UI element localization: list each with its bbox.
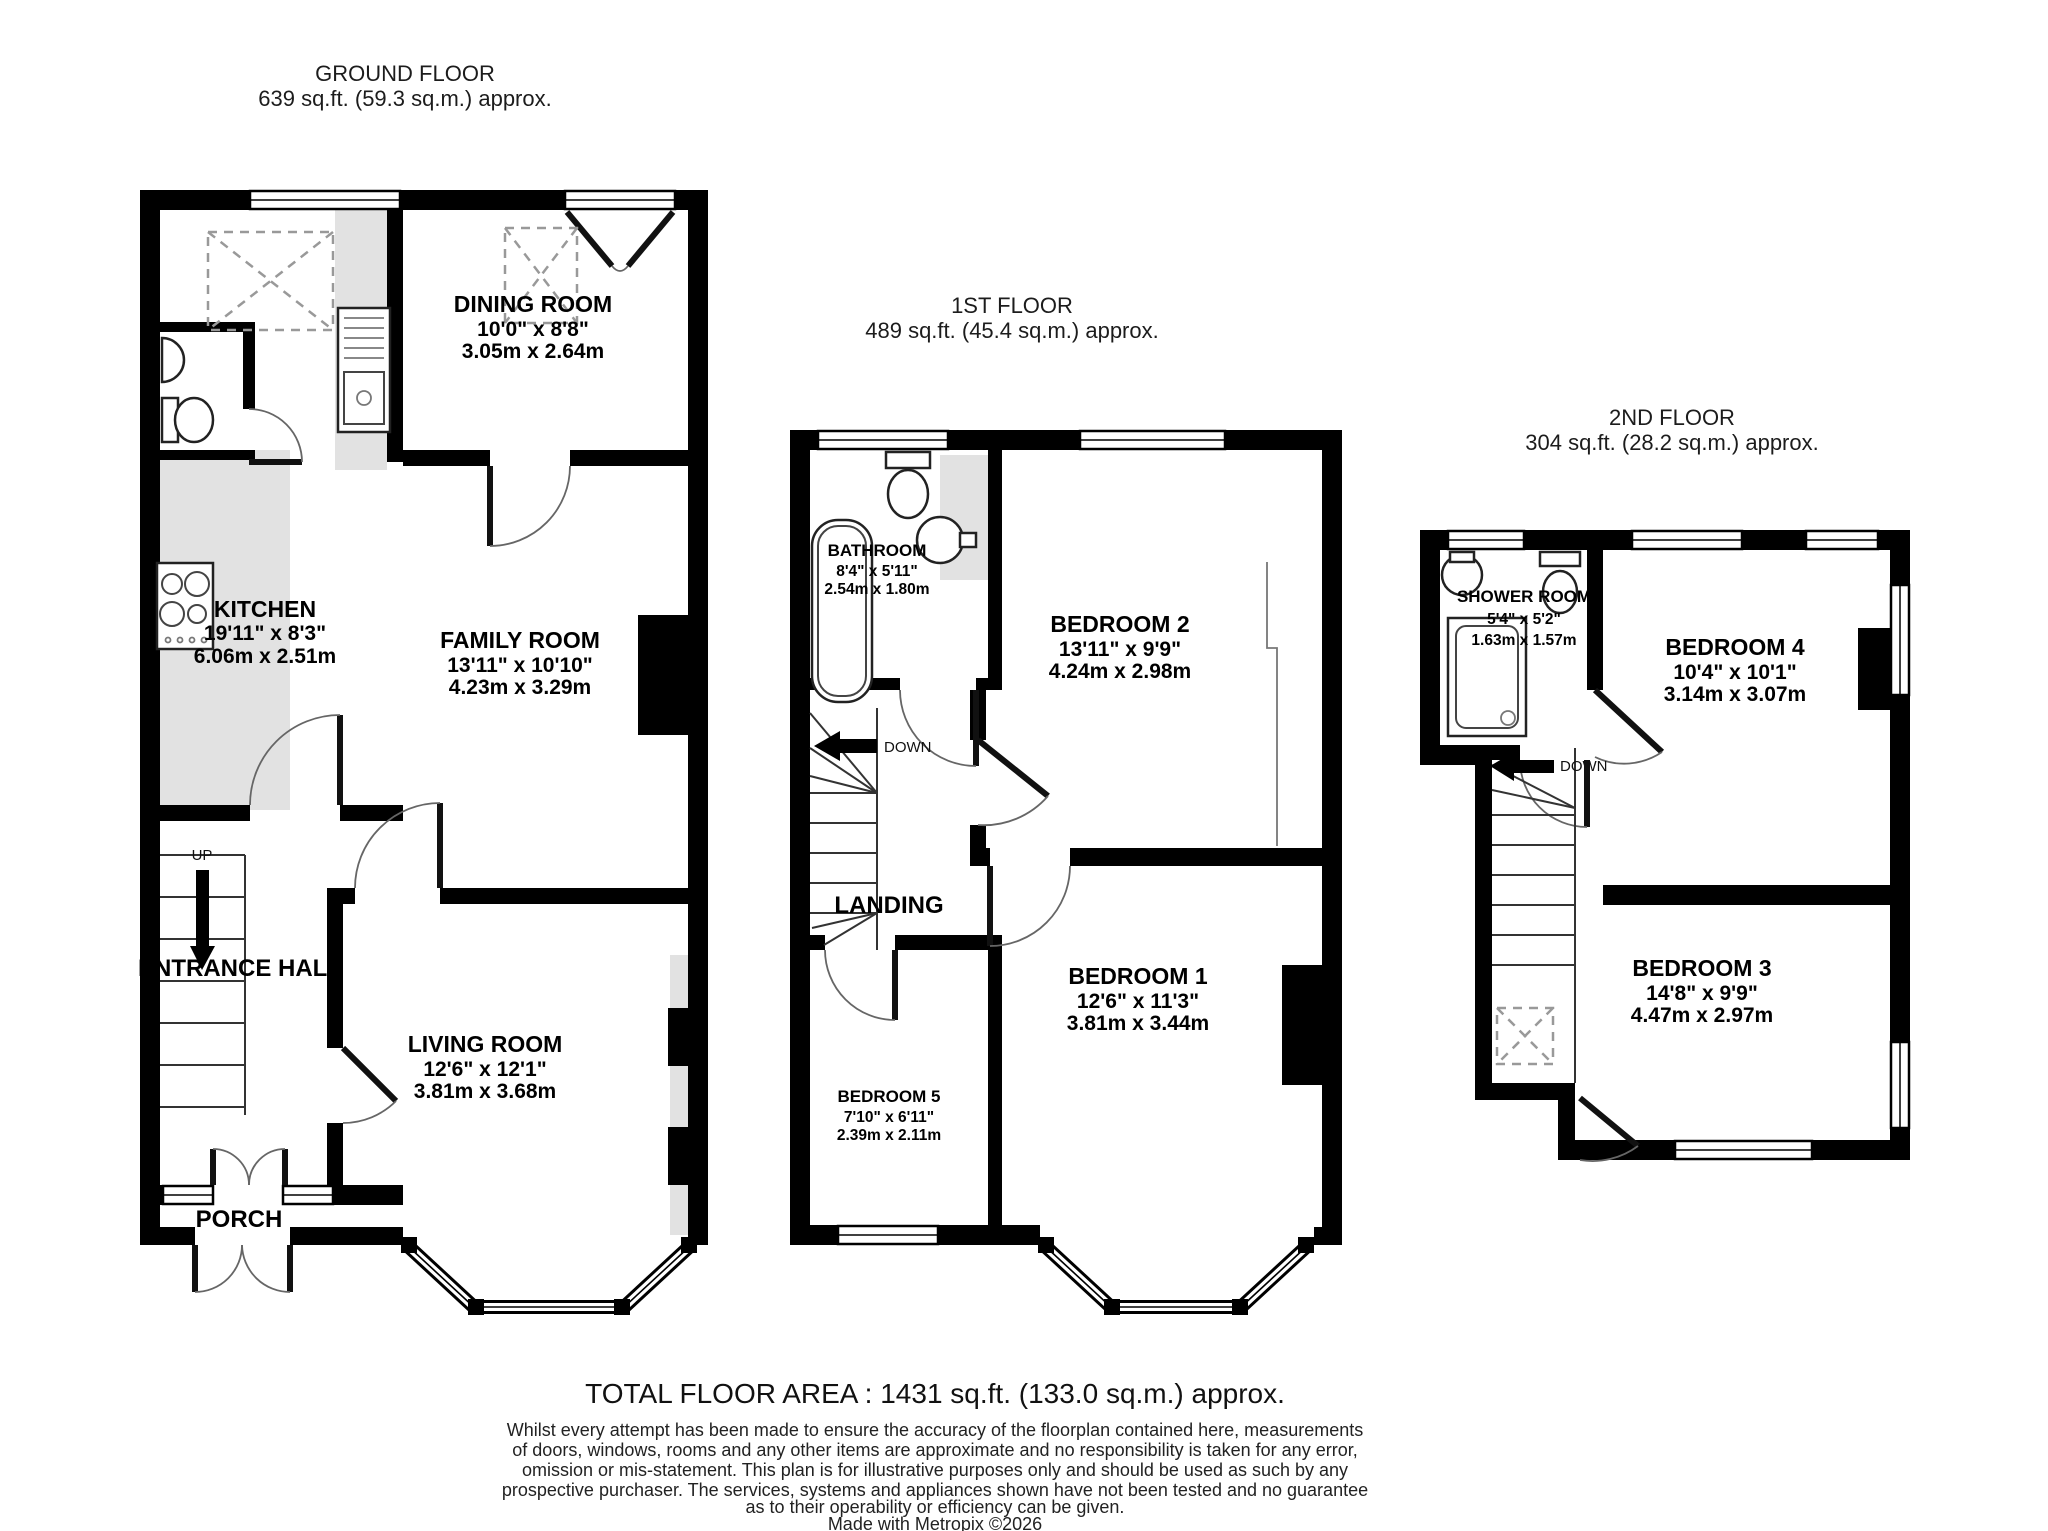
room-dims-imperial-bedroom3: 14'8" x 9'9" (1646, 982, 1758, 1005)
second-floor-area: 304 sq.ft. (28.2 sq.m.) approx. (1525, 430, 1818, 455)
room-label-living: LIVING ROOM (408, 1031, 563, 1057)
room-dims-metric-bathroom: 2.54m x 1.80m (824, 581, 929, 598)
room-dims-metric-bedroom1: 3.81m x 3.44m (1067, 1012, 1209, 1035)
total-floor-area: TOTAL FLOOR AREA : 1431 sq.ft. (133.0 sq… (585, 1378, 1285, 1409)
room-dims-imperial-bathroom: 8'4" x 5'11" (836, 563, 918, 580)
disclaimer-line-2: of doors, windows, rooms and any other i… (512, 1440, 1357, 1460)
room-dims-metric-bedroom3: 4.47m x 2.97m (1631, 1004, 1773, 1027)
room-dims-metric-bedroom4: 3.14m x 3.07m (1664, 683, 1806, 706)
bay-window (1038, 1237, 1314, 1315)
room-dims-metric-bedroom2: 4.24m x 2.98m (1049, 660, 1191, 683)
room-dims-imperial-shower-room: 5'4" x 5'2" (1487, 611, 1561, 628)
toilet-icon (162, 398, 213, 442)
room-dims-imperial-bedroom4: 10'4" x 10'1" (1673, 661, 1796, 684)
room-label-porch: PORCH (196, 1206, 283, 1233)
room-dims-imperial-bedroom2: 13'11" x 9'9" (1059, 638, 1181, 661)
stairs-down-label-2nd: DOWN (1560, 758, 1608, 775)
room-label-bedroom1: BEDROOM 1 (1068, 963, 1208, 989)
room-dims-imperial-bedroom5: 7'10" x 6'11" (844, 1109, 934, 1126)
room-label-kitchen: KITCHEN (214, 596, 316, 622)
room-label-dining: DINING ROOM (454, 291, 612, 317)
room-label-bedroom4: BEDROOM 4 (1665, 634, 1805, 660)
room-label-bathroom: BATHROOM (828, 541, 927, 560)
room-dims-imperial-kitchen: 19'11" x 8'3" (204, 622, 326, 645)
room-dims-metric-kitchen: 6.06m x 2.51m (194, 645, 336, 668)
staircase-down (1490, 748, 1575, 1083)
room-label-shower-room: SHOWER ROOM (1457, 587, 1591, 606)
floorplan-page: GROUND FLOOR 639 sq.ft. (59.3 sq.m.) app… (0, 0, 2048, 1531)
credit-line: Made with Metropix ©2026 (828, 1514, 1042, 1531)
room-dims-metric-family: 4.23m x 3.29m (449, 676, 591, 699)
room-dims-metric-living: 3.81m x 3.68m (414, 1080, 556, 1103)
room-dims-metric-dining: 3.05m x 2.64m (462, 340, 604, 363)
room-dims-metric-bedroom5: 2.39m x 2.11m (837, 1127, 941, 1144)
room-dims-imperial-bedroom1: 12'6" x 11'3" (1077, 990, 1199, 1013)
room-label-bedroom2: BEDROOM 2 (1050, 611, 1189, 637)
disclaimer-line-3: omission or mis-statement. This plan is … (522, 1460, 1348, 1480)
ground-floor-area: 639 sq.ft. (59.3 sq.m.) approx. (258, 86, 551, 111)
ground-floor-plan (140, 190, 708, 1315)
room-dims-imperial-living: 12'6" x 12'1" (423, 1058, 546, 1081)
room-dims-imperial-dining: 10'0" x 8'8" (477, 318, 589, 341)
room-label-family: FAMILY ROOM (440, 627, 600, 653)
floorplan-drawing: GROUND FLOOR 639 sq.ft. (59.3 sq.m.) app… (0, 0, 2048, 1531)
stairs-up-label: UP (192, 847, 213, 864)
room-label-bedroom3: BEDROOM 3 (1632, 955, 1771, 981)
ground-floor-title: GROUND FLOOR (315, 61, 495, 86)
stairs-down-label-1st: DOWN (884, 739, 932, 756)
bay-window (401, 1237, 697, 1315)
staircase-up (160, 855, 245, 1115)
room-dims-imperial-family: 13'11" x 10'10" (447, 654, 593, 677)
room-label-landing: LANDING (834, 892, 943, 919)
first-floor-area: 489 sq.ft. (45.4 sq.m.) approx. (865, 318, 1158, 343)
toilet-icon (886, 452, 930, 518)
door (195, 212, 673, 1292)
room-dims-metric-shower-room: 1.63m x 1.57m (1471, 632, 1576, 649)
room-label-entrance-hall: ENTRANCE HALL (138, 955, 342, 982)
basin-icon (162, 338, 184, 382)
room-label-bedroom5: BEDROOM 5 (838, 1087, 941, 1106)
kitchen-sink (338, 308, 390, 432)
second-floor-title: 2ND FLOOR (1609, 405, 1735, 430)
disclaimer-line-1: Whilst every attempt has been made to en… (507, 1420, 1363, 1440)
first-floor-title: 1ST FLOOR (951, 293, 1073, 318)
